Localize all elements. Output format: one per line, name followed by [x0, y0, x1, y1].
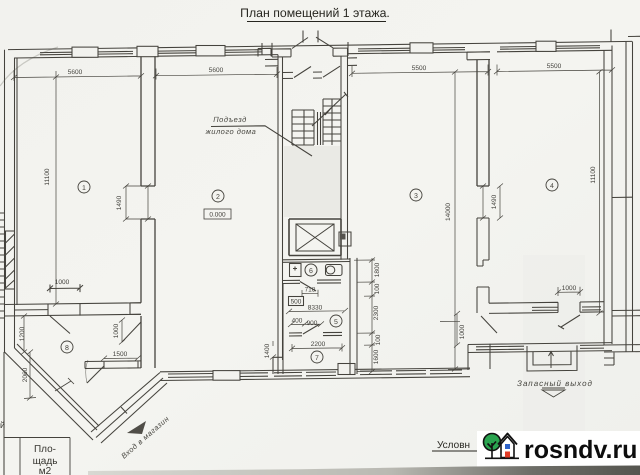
svg-text:14000: 14000: [445, 203, 452, 221]
svg-text:1490: 1490: [116, 195, 123, 210]
svg-text:100: 100: [374, 283, 381, 294]
svg-text:жилого дома: жилого дома: [205, 127, 257, 136]
svg-text:400: 400: [292, 318, 303, 325]
svg-text:1800: 1800: [374, 262, 381, 277]
svg-text:5600: 5600: [209, 67, 224, 74]
svg-text:100: 100: [375, 334, 382, 345]
svg-text:1200: 1200: [19, 326, 26, 341]
svg-text:3: 3: [414, 193, 418, 200]
svg-text:м2: м2: [39, 466, 52, 475]
svg-text:8330: 8330: [308, 305, 323, 312]
svg-text:1400: 1400: [264, 343, 271, 358]
svg-text:5600: 5600: [68, 69, 83, 76]
svg-text:710: 710: [305, 287, 316, 294]
svg-text:й: й: [0, 420, 5, 430]
svg-text:7: 7: [315, 355, 319, 362]
svg-text:1500: 1500: [113, 351, 128, 358]
svg-text:Пло-: Пло-: [34, 444, 56, 455]
svg-text:5500: 5500: [412, 65, 427, 72]
svg-text:1490: 1490: [491, 194, 498, 209]
svg-text:5500: 5500: [547, 63, 562, 70]
svg-text:5: 5: [334, 319, 338, 326]
svg-text:Условн: Условн: [437, 440, 470, 451]
svg-text:Запасный выход: Запасный выход: [517, 379, 593, 388]
svg-text:4: 4: [550, 183, 554, 190]
svg-text:11100: 11100: [590, 166, 597, 183]
svg-text:Подъезд: Подъезд: [213, 115, 247, 124]
svg-text:2300: 2300: [373, 305, 380, 320]
svg-text:6: 6: [309, 268, 313, 275]
svg-text:2200: 2200: [311, 341, 326, 348]
svg-text:0.000: 0.000: [209, 212, 226, 219]
svg-text:11100: 11100: [44, 168, 51, 185]
svg-text:1000: 1000: [459, 324, 466, 339]
svg-text:900: 900: [307, 320, 318, 327]
svg-text:8: 8: [65, 345, 69, 352]
svg-text:1: 1: [82, 185, 86, 192]
svg-text:1000: 1000: [113, 323, 120, 338]
svg-text:2060: 2060: [22, 367, 29, 382]
svg-text:2: 2: [216, 194, 220, 201]
svg-text:1000: 1000: [562, 285, 577, 292]
svg-text:1600: 1600: [373, 349, 380, 364]
svg-text:500: 500: [291, 299, 302, 306]
svg-text:1000: 1000: [55, 279, 70, 286]
svg-text:План помещений 1 этажа.: План помещений 1 этажа.: [240, 6, 390, 20]
svg-text:rosndv.ru: rosndv.ru: [524, 436, 637, 464]
